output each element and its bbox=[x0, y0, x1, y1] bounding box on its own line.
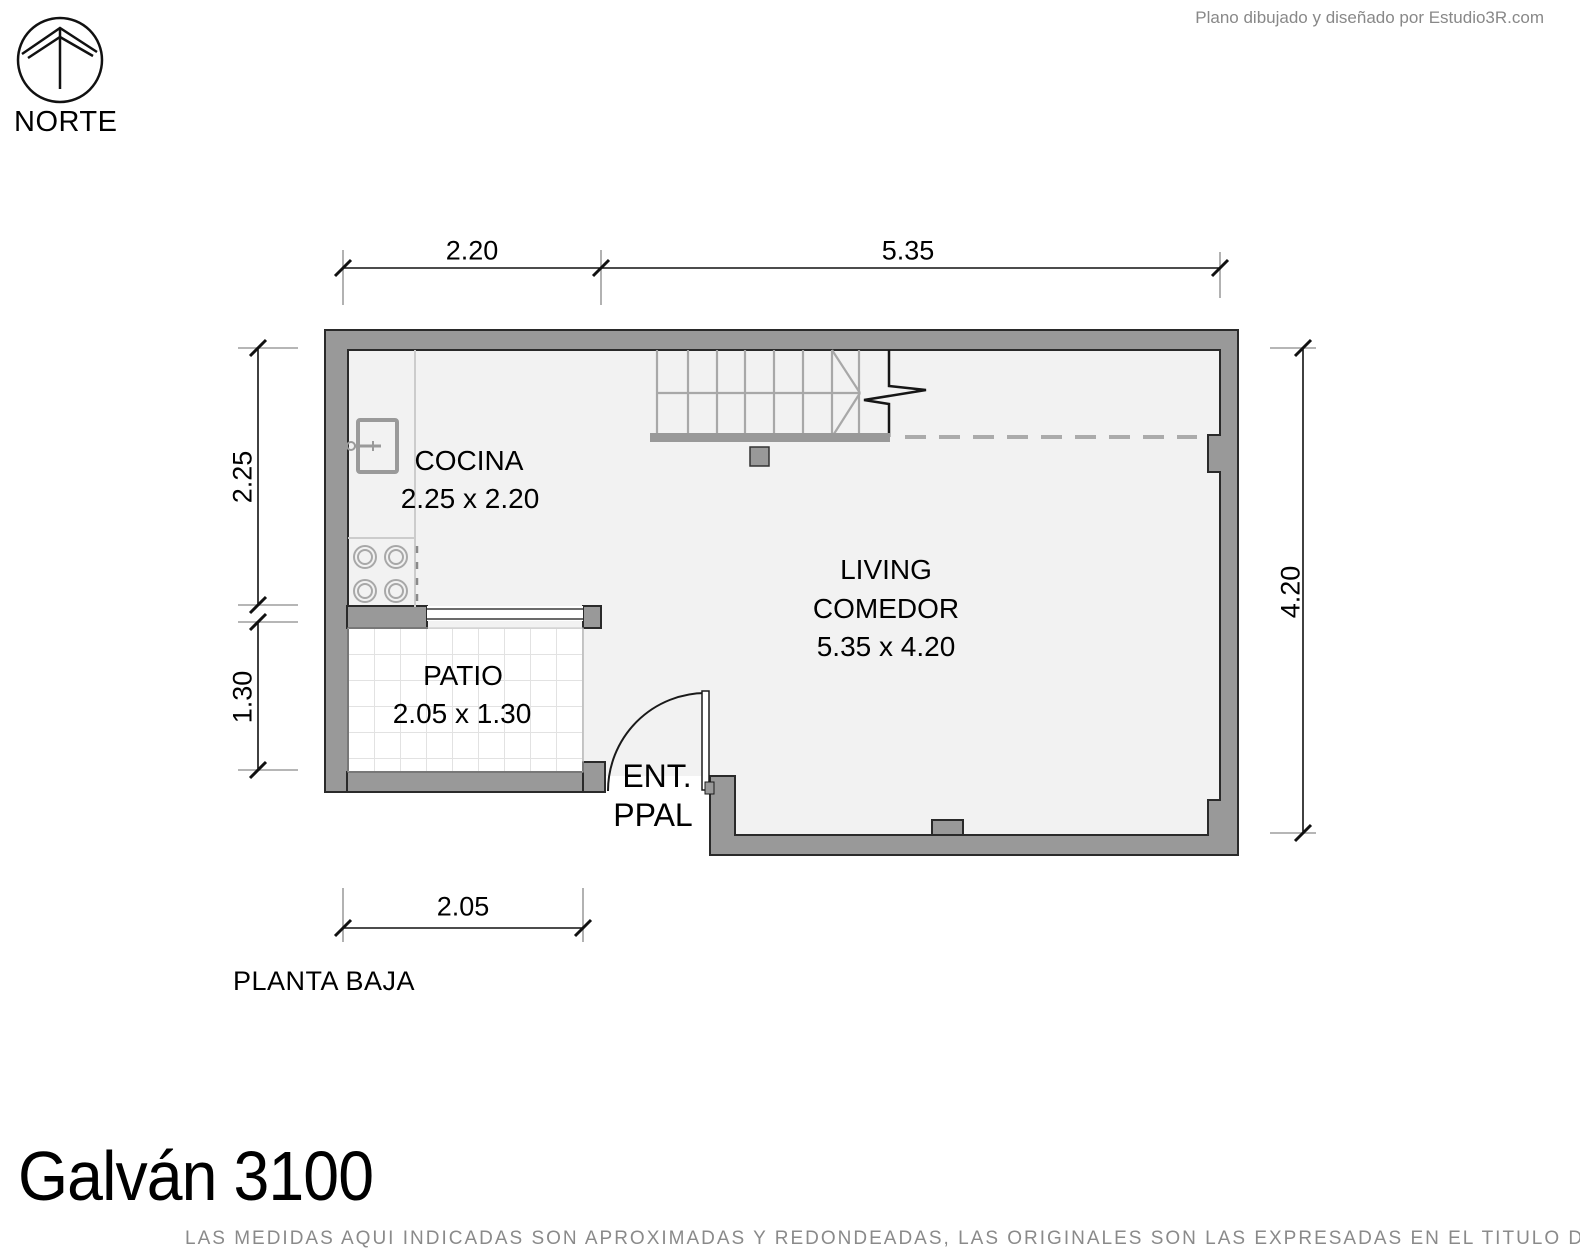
dim-bottom: 2.05 bbox=[437, 894, 490, 921]
dim-left-lower: 1.30 bbox=[230, 671, 257, 724]
room-label-comedor: COMEDOR bbox=[813, 595, 959, 623]
room-size-living: 5.35 x 4.20 bbox=[817, 633, 956, 661]
dim-top-right: 5.35 bbox=[882, 238, 935, 265]
room-label-living: LIVING bbox=[840, 556, 932, 584]
page-title: Galván 3100 bbox=[18, 1136, 373, 1216]
north-compass-icon bbox=[18, 18, 102, 102]
entrance-label-line1: ENT. bbox=[622, 760, 691, 792]
credit-text: Plano dibujado y diseñado por Estudio3R.… bbox=[1195, 8, 1544, 28]
entrance-label-line2: PPAL bbox=[613, 799, 692, 831]
dim-left-upper: 2.25 bbox=[230, 451, 257, 504]
compass-label: NORTE bbox=[14, 106, 117, 139]
room-size-patio: 2.05 x 1.30 bbox=[393, 700, 532, 728]
floor-label: PLANTA BAJA bbox=[233, 966, 415, 997]
dim-top-left: 2.20 bbox=[446, 238, 499, 265]
room-label-cocina: COCINA bbox=[415, 447, 524, 475]
room-label-patio: PATIO bbox=[423, 662, 503, 690]
room-size-cocina: 2.25 x 2.20 bbox=[401, 485, 540, 513]
dim-right: 4.20 bbox=[1278, 566, 1305, 619]
floor-plan-page: Plano dibujado y diseñado por Estudio3R.… bbox=[0, 0, 1580, 1258]
disclaimer-text: LAS MEDIDAS AQUI INDICADAS SON APROXIMAD… bbox=[185, 1228, 1580, 1250]
